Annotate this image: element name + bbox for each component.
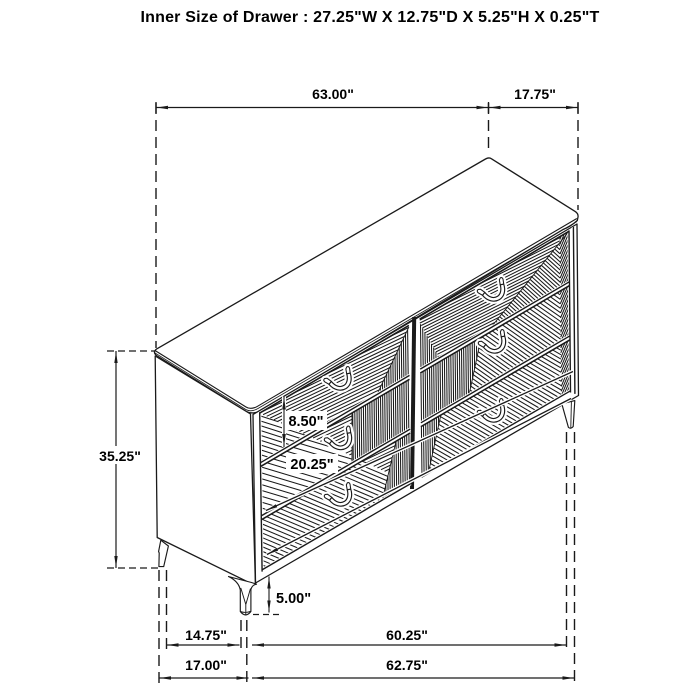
svg-text:17.00": 17.00": [185, 657, 227, 673]
svg-text:8.50": 8.50": [288, 414, 323, 430]
svg-text:17.75": 17.75": [514, 86, 556, 102]
svg-text:20.25": 20.25": [290, 457, 333, 473]
svg-text:63.00": 63.00": [312, 86, 354, 102]
svg-text:35.25": 35.25": [99, 448, 141, 464]
svg-text:62.75": 62.75": [386, 657, 428, 673]
svg-text:60.25": 60.25": [386, 627, 428, 643]
svg-text:14.75": 14.75": [185, 627, 227, 643]
svg-text:5.00": 5.00": [276, 591, 311, 607]
